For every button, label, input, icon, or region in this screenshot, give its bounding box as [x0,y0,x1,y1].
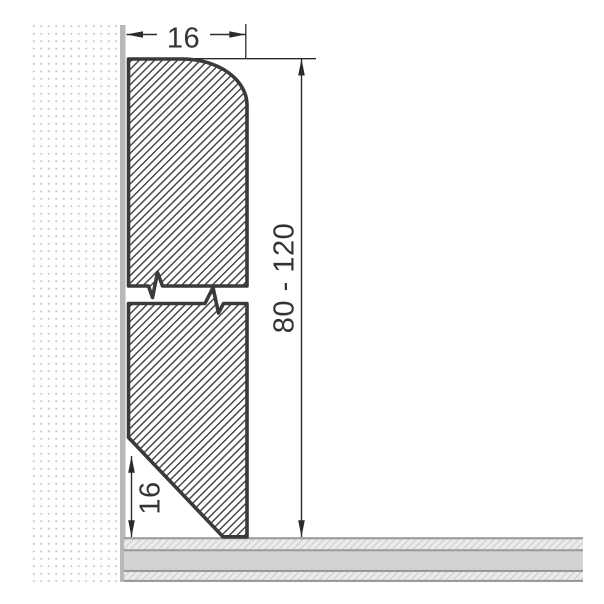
floor-separator-bottom [124,570,583,572]
floor [124,537,583,582]
wall-surface [27,25,120,582]
floor-core [124,551,583,569]
bevel-dim-label: 16 [135,481,167,514]
wall [27,25,126,582]
technical-drawing: 16 80 - 120 16 [0,0,604,604]
floor-top-border [124,537,583,539]
floor-separator-top [124,549,583,551]
drawing-canvas: 16 80 - 120 16 [0,0,604,604]
floor-underlay-top [124,539,583,549]
floor-bottom-border [124,580,583,582]
profile-upper-section [129,59,248,298]
wall-edge-line [120,25,126,582]
floor-underlay-bottom [124,572,583,580]
width-dim-label: 16 [167,23,200,55]
height-dim-label: 80 - 120 [269,223,301,333]
